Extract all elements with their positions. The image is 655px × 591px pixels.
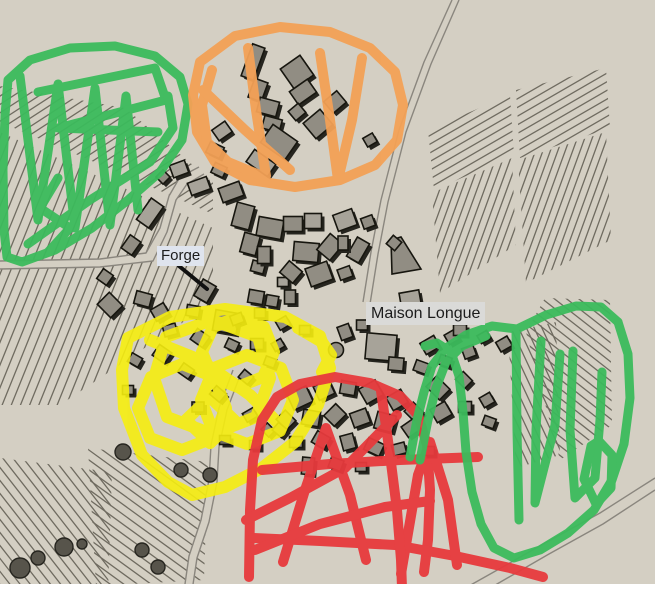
- bottom-band: [0, 584, 655, 591]
- tree: [203, 468, 217, 482]
- building: [305, 214, 325, 232]
- building: [293, 241, 323, 265]
- forge-label: Forge: [157, 246, 204, 266]
- tree: [31, 551, 45, 565]
- tree: [151, 560, 165, 574]
- building: [284, 217, 306, 235]
- building: [258, 247, 274, 267]
- tree: [10, 558, 30, 578]
- maison-longue-label: Maison Longue: [366, 302, 485, 325]
- marker-stroke: [516, 331, 519, 520]
- tree: [77, 539, 87, 549]
- tree: [135, 543, 149, 557]
- tree: [174, 463, 188, 477]
- tree: [115, 444, 131, 460]
- tree: [55, 538, 73, 556]
- village-map: [0, 0, 655, 591]
